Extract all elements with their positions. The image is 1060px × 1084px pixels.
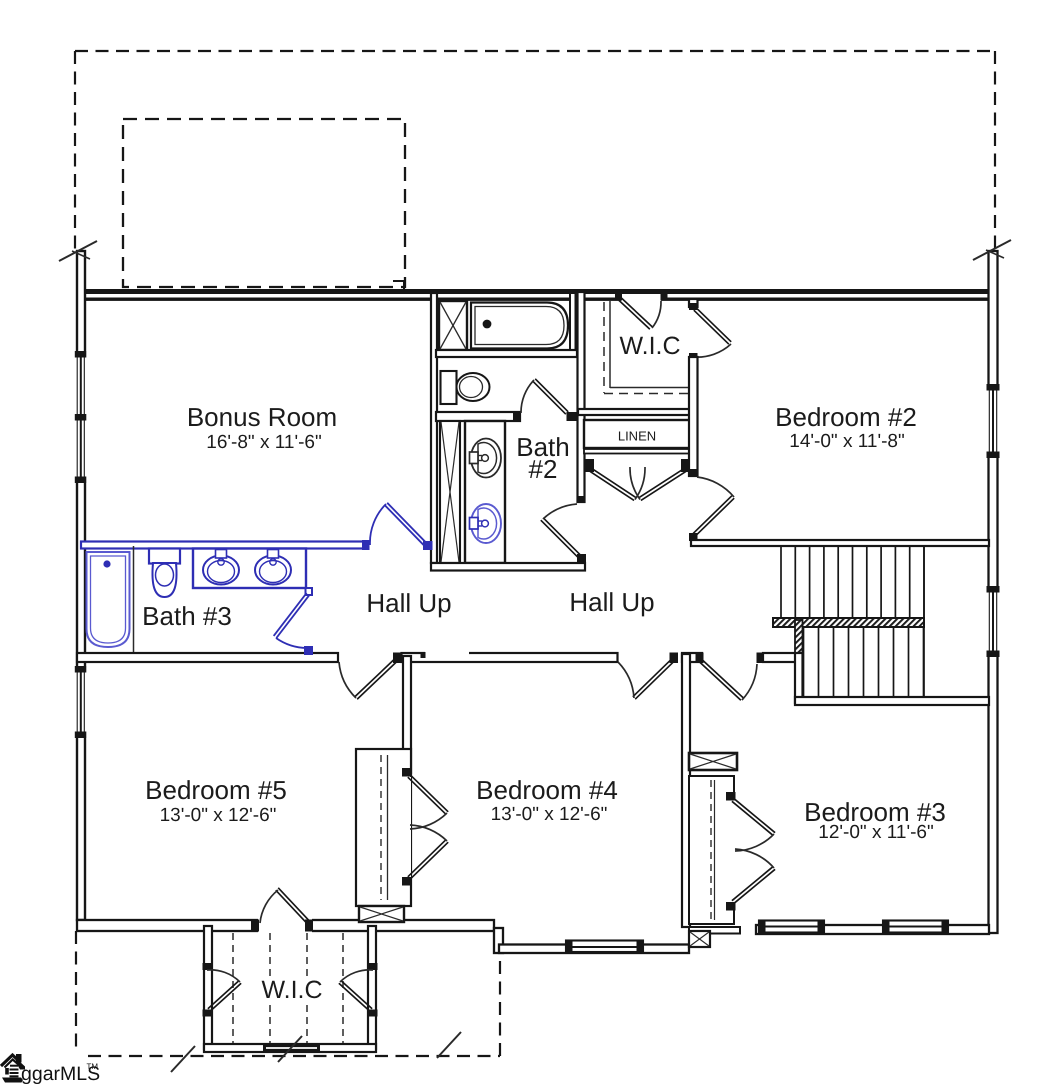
svg-text:#2: #2 (529, 454, 558, 484)
svg-text:W.I.C: W.I.C (619, 332, 680, 360)
svg-text:16'-8" x 11'-6": 16'-8" x 11'-6" (206, 432, 321, 453)
svg-text:Hall Up: Hall Up (569, 587, 654, 617)
svg-text:Bedroom #5: Bedroom #5 (145, 775, 287, 805)
svg-text:Bedroom #4: Bedroom #4 (476, 775, 618, 805)
svg-text:12'-0" x 11'-6": 12'-0" x 11'-6" (818, 822, 933, 843)
svg-text:13'-0" x 12'-6": 13'-0" x 12'-6" (491, 804, 608, 825)
svg-text:W.I.C: W.I.C (261, 976, 322, 1004)
svg-text:13'-0" x 12'-6": 13'-0" x 12'-6" (160, 805, 277, 826)
svg-text:Bath #3: Bath #3 (142, 601, 232, 631)
svg-text:Hall Up: Hall Up (366, 588, 451, 618)
svg-text:TM: TM (87, 1062, 99, 1071)
svg-text:LINEN: LINEN (618, 429, 656, 444)
svg-text:Bedroom #2: Bedroom #2 (775, 402, 917, 432)
svg-text:Bonus Room: Bonus Room (187, 402, 337, 432)
svg-text:14'-0" x 11'-8": 14'-0" x 11'-8" (789, 431, 904, 452)
